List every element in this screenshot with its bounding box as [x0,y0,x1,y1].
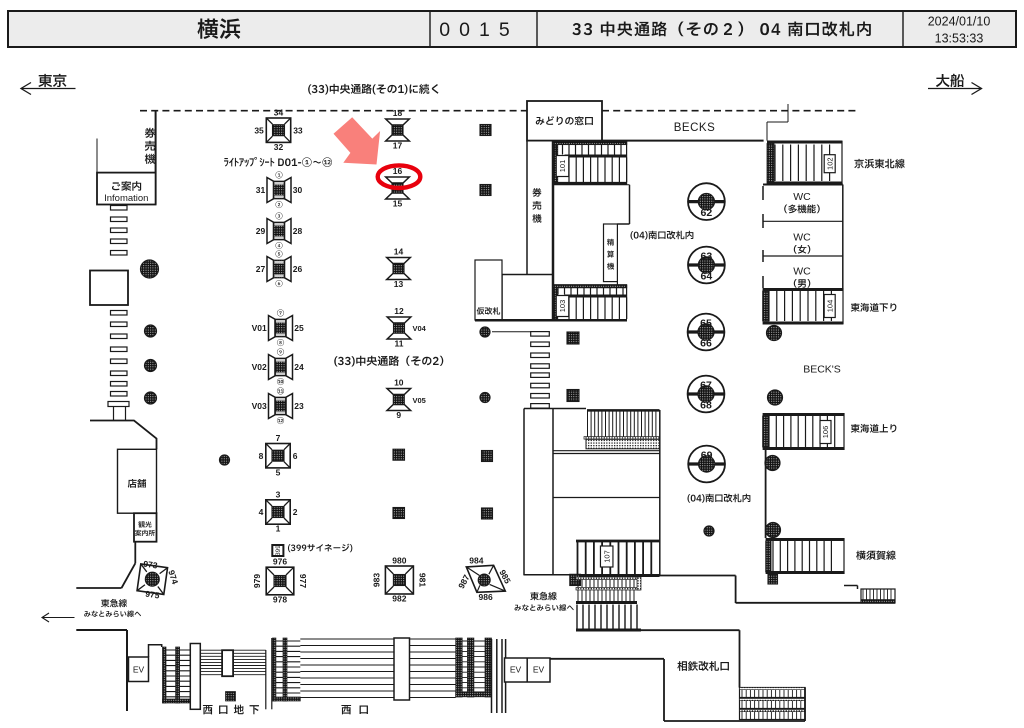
svg-text:68: 68 [700,400,712,412]
svg-text:9: 9 [396,410,401,420]
svg-text:63: 63 [701,251,713,263]
svg-text:24: 24 [294,362,304,372]
svg-text:2: 2 [293,507,298,517]
svg-text:0015: 0015 [439,19,518,41]
svg-text:4: 4 [259,507,264,517]
svg-text:25: 25 [294,323,304,333]
svg-text:8: 8 [259,451,264,461]
svg-text:V03: V03 [252,401,267,411]
svg-text:3: 3 [276,489,281,499]
svg-text:399: 399 [275,545,282,556]
svg-text:EV: EV [533,665,545,675]
svg-text:V04: V04 [413,324,427,333]
svg-text:7: 7 [276,433,281,443]
svg-text:67: 67 [700,380,712,392]
svg-text:103: 103 [558,300,567,313]
svg-text:64: 64 [701,271,713,283]
svg-text:11: 11 [395,339,404,349]
svg-text:62: 62 [701,207,713,219]
svg-text:981: 981 [417,573,427,587]
svg-text:973: 973 [143,559,159,571]
svg-text:2024/01/10: 2024/01/10 [928,15,991,29]
svg-text:33: 33 [293,125,303,135]
svg-text:1: 1 [276,524,281,534]
svg-text:66: 66 [700,338,712,350]
svg-text:34: 34 [274,108,284,118]
svg-text:EV: EV [133,665,145,675]
svg-text:Infomation: Infomation [104,193,148,204]
svg-text:13:53:33: 13:53:33 [935,32,984,46]
svg-text:17: 17 [393,141,403,151]
svg-text:986: 986 [479,592,493,602]
svg-text:104: 104 [825,300,834,313]
svg-text:32: 32 [274,142,284,152]
svg-text:13: 13 [394,279,404,289]
svg-text:65: 65 [700,318,712,330]
svg-text:BECK'S: BECK'S [803,364,841,376]
svg-text:982: 982 [392,594,406,604]
svg-text:979: 979 [252,574,262,588]
svg-text:977: 977 [298,574,308,588]
svg-text:978: 978 [273,594,287,604]
svg-text:28: 28 [293,226,303,236]
svg-text:26: 26 [293,264,303,274]
svg-text:101: 101 [558,160,567,173]
svg-text:V02: V02 [252,362,267,372]
svg-text:984: 984 [469,556,483,566]
svg-text:102: 102 [825,157,834,170]
svg-text:18: 18 [393,108,403,118]
svg-text:30: 30 [293,185,303,195]
svg-text:31: 31 [256,185,266,195]
svg-text:5: 5 [276,467,281,477]
svg-text:23: 23 [294,401,304,411]
svg-text:106: 106 [821,426,830,439]
svg-text:BECKS: BECKS [674,122,716,134]
svg-text:12: 12 [394,306,404,316]
svg-text:6: 6 [293,451,298,461]
svg-text:15: 15 [393,199,403,209]
svg-text:983: 983 [371,573,381,587]
svg-text:10: 10 [394,378,404,388]
svg-text:975: 975 [145,589,161,601]
svg-text:69: 69 [701,450,713,462]
svg-text:EV: EV [510,665,522,675]
svg-text:35: 35 [254,125,264,135]
svg-text:WC: WC [793,191,811,203]
svg-text:WC: WC [793,266,811,278]
svg-text:107: 107 [602,550,611,563]
svg-text:27: 27 [256,264,266,274]
svg-text:V01: V01 [252,323,267,333]
svg-text:976: 976 [273,557,287,567]
svg-text:980: 980 [392,556,406,566]
svg-text:14: 14 [394,247,404,257]
svg-text:V05: V05 [413,396,426,405]
svg-text:WC: WC [793,232,811,244]
svg-text:29: 29 [256,226,266,236]
